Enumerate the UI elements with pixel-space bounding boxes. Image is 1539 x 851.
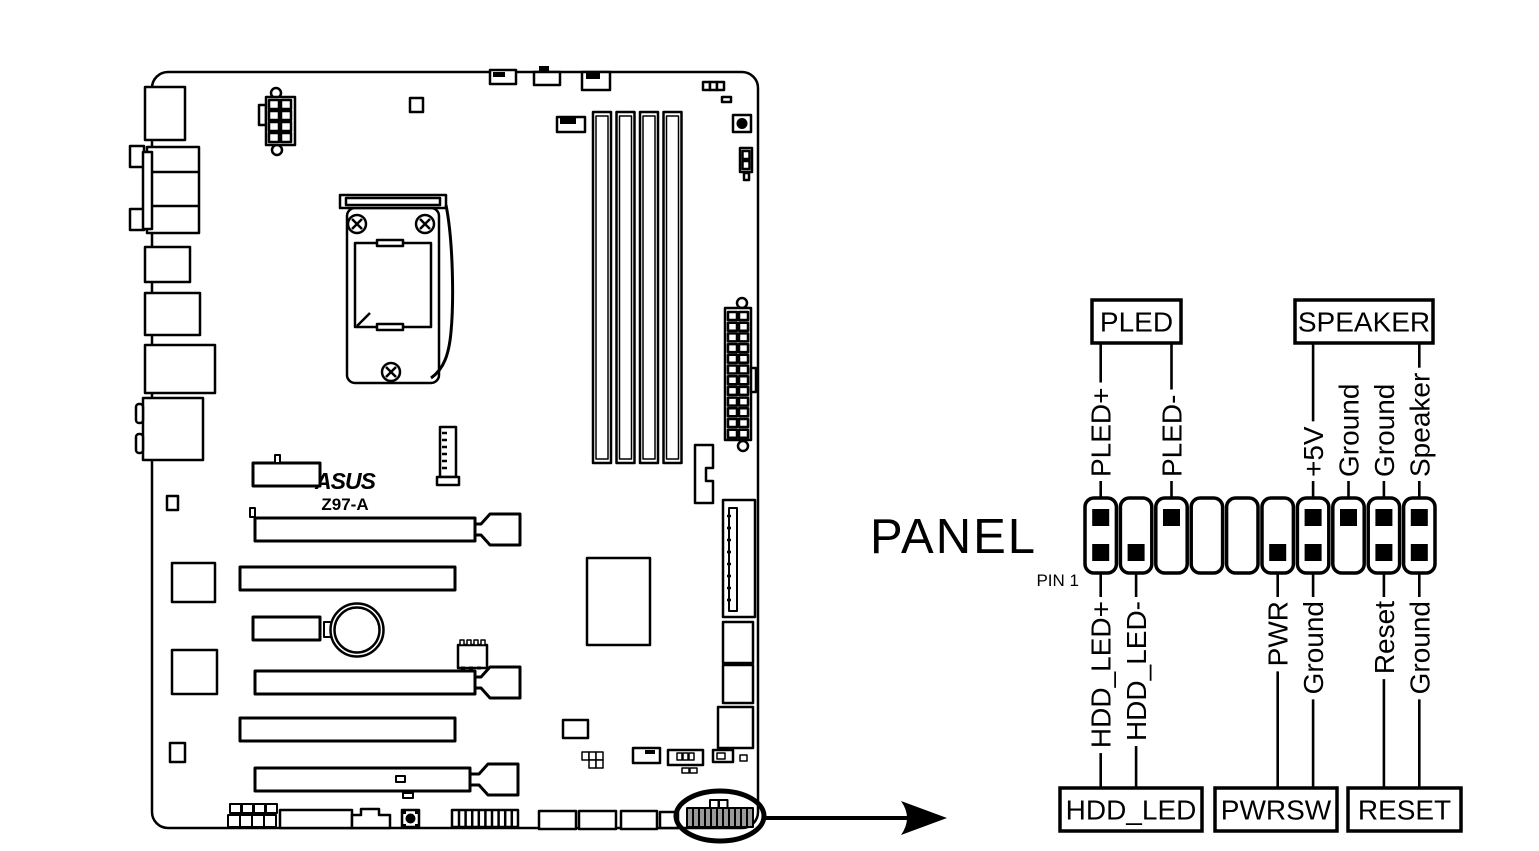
pin-signal-label-top: Speaker <box>1404 373 1435 477</box>
pin-square-bottom <box>1411 544 1428 561</box>
pin-square-bottom <box>1092 544 1109 561</box>
usb-header-1 <box>539 811 576 829</box>
pin-square-top <box>1340 509 1357 526</box>
pin-capsule <box>1191 498 1222 573</box>
pin-signal-label-top: Ground <box>1334 384 1365 477</box>
sata-port-2 <box>723 665 753 703</box>
signal-group-box-label: PWRSW <box>1221 795 1332 826</box>
pin-signal-label-bottom: Ground <box>1298 601 1329 694</box>
pcie-x16-slot-3 <box>255 768 470 791</box>
pin-square-top <box>1411 509 1428 526</box>
sata-port-1 <box>723 622 753 663</box>
pin-capsule <box>1262 498 1293 573</box>
panel-pinout-diagram: PLED+HDD_LED+HDD_LED-PLED-PWR+5VGroundGr… <box>1060 300 1461 831</box>
pin-square-top <box>1305 509 1322 526</box>
chipset <box>587 558 650 645</box>
pin-square-top <box>1163 509 1180 526</box>
pin-signal-label-top: PLED+ <box>1086 388 1117 478</box>
pin-signal-label-bottom: PWR <box>1263 601 1294 666</box>
pin-signal-label-bottom: HDD_LED+ <box>1086 601 1117 748</box>
pcie-x16-slot-2 <box>255 671 475 694</box>
figure-canvas: ASUS Z97-A <box>0 0 1539 851</box>
model-label: Z97-A <box>321 495 368 514</box>
signal-group-box-label: PLED <box>1100 307 1173 338</box>
motherboard-drawing: ASUS Z97-A <box>130 66 947 841</box>
panel-title: PANEL <box>870 510 1037 564</box>
pin-capsule <box>1120 498 1151 573</box>
pin-signal-label-top: PLED- <box>1157 395 1188 477</box>
signal-group-box-label: HDD_LED <box>1066 795 1197 826</box>
m2-connector <box>437 427 459 485</box>
pin-capsule <box>1227 498 1258 573</box>
cpu-socket <box>340 195 453 383</box>
signal-group-box-label: RESET <box>1358 795 1451 826</box>
cmos-battery <box>331 604 384 657</box>
pin-square-bottom <box>1305 544 1322 561</box>
pin-signal-label-bottom: Ground <box>1404 601 1435 694</box>
pin-signal-label-bottom: HDD_LED- <box>1121 601 1152 741</box>
pin1-label: PIN 1 <box>1036 571 1079 590</box>
bios-chip <box>458 640 487 668</box>
pin-signal-label-top: Ground <box>1369 384 1400 477</box>
pin-signal-label-bottom: Reset <box>1369 601 1400 674</box>
pin-square-bottom <box>1269 544 1286 561</box>
pin-square-bottom <box>1375 544 1392 561</box>
pcie-slot-3 <box>240 718 455 741</box>
signal-group-box-label: SPEAKER <box>1298 307 1430 338</box>
pcie-x16-slot-1 <box>255 518 475 541</box>
usb-header-3 <box>621 811 657 829</box>
callout-arrow <box>764 801 947 835</box>
silkscreen-text: ASUS Z97-A <box>314 468 377 514</box>
usb-header-2 <box>579 811 616 829</box>
pcie-slot-2 <box>240 567 455 590</box>
atx-24pin-connector <box>725 298 756 451</box>
pin-square-top <box>1092 509 1109 526</box>
pin-square-bottom <box>1128 544 1145 561</box>
manual-figure-panel-connector: ASUS Z97-A <box>0 0 1539 851</box>
asus-logo: ASUS <box>314 468 377 494</box>
pin-signal-label-top: +5V <box>1298 426 1329 477</box>
pin-square-top <box>1375 509 1392 526</box>
